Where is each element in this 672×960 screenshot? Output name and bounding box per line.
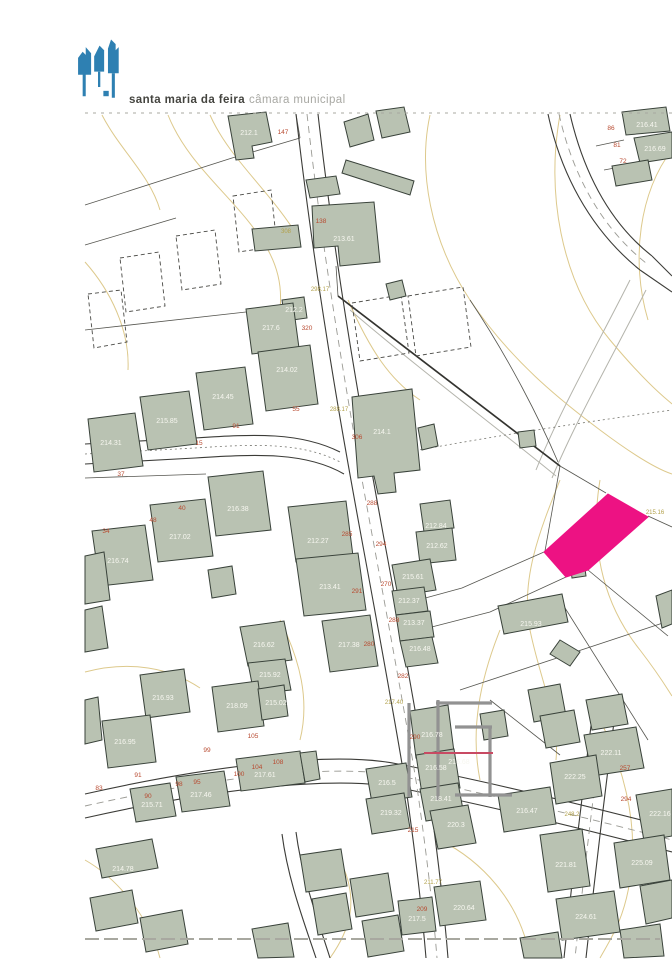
house-number-label: 291 — [352, 588, 363, 595]
castle-tower-shape — [94, 46, 104, 72]
building-footprint — [300, 849, 347, 892]
page-header: santa maria da feiracâmara municipal — [75, 28, 346, 110]
municipality-brand: santa maria da feiracâmara municipal — [129, 90, 346, 110]
elevation-label: 217.46 — [190, 792, 212, 799]
house-number-label: 105 — [248, 733, 259, 740]
highlighted-parcel — [544, 494, 648, 577]
house-number-label: 91 — [134, 772, 142, 779]
building-footprint — [140, 669, 190, 718]
building-footprint — [540, 710, 580, 748]
elevation-label: 215.85 — [156, 418, 178, 425]
elevation-label: 216.38 — [227, 506, 249, 513]
house-number-label: 100 — [234, 771, 245, 778]
elevation-label: 215.93 — [520, 621, 542, 628]
contour-line — [85, 262, 128, 370]
elevation-label: 222.16 — [649, 811, 671, 818]
elevation-label: 213.41 — [319, 584, 341, 591]
elevation-label: 217.6 — [262, 325, 280, 332]
building-footprint — [352, 389, 420, 494]
elevation-label: 216.95 — [114, 739, 136, 746]
elevation-label: 216.58 — [425, 765, 447, 772]
elevation-label: 219.32 — [380, 810, 402, 817]
contour-elevation-label: 308 — [281, 229, 292, 235]
elevation-label: 215.71 — [141, 802, 163, 809]
building-footprint — [312, 893, 352, 935]
contour-line — [102, 115, 160, 210]
building-footprint — [586, 694, 628, 730]
road-centerline — [559, 114, 646, 263]
elevation-label: 217.61 — [254, 772, 276, 779]
road-casing-line — [570, 114, 652, 256]
castle-tower-shape — [108, 39, 119, 73]
building-footprint — [252, 923, 294, 958]
building-footprint — [342, 160, 414, 195]
elevation-label: 217.02 — [169, 534, 191, 541]
parcel-boundary-line — [560, 466, 606, 493]
house-number-label: 55 — [292, 406, 300, 413]
house-number-label: 288 — [389, 617, 400, 624]
brand-subtitle: câmara municipal — [249, 94, 346, 106]
elevation-label: 212.37 — [398, 598, 420, 605]
elevation-label: 220.64 — [453, 905, 475, 912]
house-number-label: 98 — [175, 781, 183, 788]
house-number-label: 81 — [613, 142, 621, 149]
elevation-label: 216.69 — [644, 146, 666, 153]
building-footprint — [620, 924, 664, 958]
elevation-label: 222.25 — [564, 774, 586, 781]
brand-name: santa maria da feira — [129, 94, 245, 106]
elevation-label: 216.62 — [253, 642, 275, 649]
building-footprint — [480, 710, 508, 740]
house-number-label: 257 — [620, 765, 631, 772]
unbuilt-lot-outline — [408, 287, 471, 356]
building-footprint — [550, 640, 580, 666]
contour-elevation-label: 211.77 — [424, 880, 443, 886]
house-number-label: 306 — [352, 434, 363, 441]
parcel-boundary-line — [648, 516, 672, 527]
building-footprint — [140, 910, 188, 952]
building-footprint — [344, 114, 374, 147]
house-number-label: 290 — [410, 734, 421, 741]
building-footprint — [306, 176, 340, 198]
house-number-label: 37 — [117, 471, 125, 478]
building-footprint — [85, 606, 108, 652]
house-number-label: 285 — [342, 531, 353, 538]
building-footprint — [518, 430, 536, 448]
house-number-label: 294 — [376, 541, 387, 548]
castle-tower-shape — [112, 73, 115, 98]
elevation-label: 216.78 — [421, 732, 443, 739]
house-number-label: 288 — [367, 500, 378, 507]
building-footprint — [656, 590, 672, 628]
parcel-boundary-line — [336, 266, 338, 296]
elevation-label: 214.02 — [276, 367, 298, 374]
contour-elevation-label: 288.17 — [330, 407, 349, 413]
building-footprint — [90, 890, 138, 931]
elevation-label: 216.41 — [636, 122, 658, 129]
elevation-label: 216.48 — [409, 646, 431, 653]
castle-tower-shape — [103, 91, 108, 96]
building-footprint — [208, 471, 271, 536]
parcel-boundary-line — [545, 466, 560, 551]
elevation-label: 212.2 — [285, 307, 303, 314]
castle-tower-shape — [98, 72, 100, 87]
house-number-label: 86 — [607, 125, 615, 132]
elevation-label: 212.62 — [426, 543, 448, 550]
building-footprint — [612, 160, 652, 186]
road-casing-line — [640, 270, 672, 292]
house-number-label: 95 — [193, 779, 201, 786]
house-number-label: 138 — [316, 218, 327, 225]
house-number-label: 294 — [621, 796, 632, 803]
elevation-label: 213.61 — [333, 236, 355, 243]
house-number-label: 215 — [408, 827, 419, 834]
elevation-label: 216.74 — [107, 558, 129, 565]
parcel-boundary-line — [85, 474, 206, 478]
municipality-castle-logo-icon — [75, 28, 121, 110]
elevation-label: 212.84 — [425, 523, 447, 530]
elevation-label: 216.93 — [152, 695, 174, 702]
building-footprint — [312, 202, 380, 266]
contour-elevation-label: 217.40 — [385, 700, 404, 706]
house-number-label: 99 — [203, 747, 211, 754]
house-number-label: 270 — [381, 581, 392, 588]
unbuilt-lot-outline — [88, 290, 127, 348]
house-number-label: 15 — [195, 440, 203, 447]
elevation-label: 214.1 — [373, 429, 391, 436]
building-footprint — [208, 566, 236, 598]
unbuilt-lot-outline — [120, 252, 165, 312]
house-number-label: 104 — [252, 764, 263, 771]
building-footprint — [258, 345, 318, 411]
building-footprint — [418, 424, 438, 450]
house-number-label: 34 — [102, 528, 110, 535]
parcel-boundary-line — [85, 218, 176, 245]
house-number-label: 108 — [273, 759, 284, 766]
road-casing-line — [548, 114, 640, 270]
elevation-label: 224.61 — [575, 914, 597, 921]
house-number-label: 209 — [417, 906, 428, 913]
elevation-label: 216.68 — [448, 759, 470, 766]
building-footprint — [85, 697, 102, 744]
elevation-label: 225.09 — [631, 860, 653, 867]
building-footprint — [520, 932, 562, 958]
parcel-boundary-line — [470, 300, 558, 462]
contour-elevation-label: 215.16 — [646, 510, 665, 516]
elevation-label: 214.78 — [112, 866, 134, 873]
elevation-label: 218.09 — [226, 703, 248, 710]
house-number-label: 282 — [398, 673, 409, 680]
elevation-label: 217.38 — [338, 642, 360, 649]
building-footprint — [498, 594, 568, 634]
house-number-label: 90 — [144, 793, 152, 800]
elevation-label: 213.37 — [403, 620, 425, 627]
elevation-label: 216.5 — [378, 780, 396, 787]
elevation-label: 215.02 — [265, 700, 287, 707]
house-number-label: 83 — [95, 785, 103, 792]
elevation-label: 214.31 — [100, 440, 122, 447]
house-number-label: 91 — [232, 423, 240, 430]
contour-elevation-label: 248.2 — [564, 812, 580, 818]
house-number-label: 48 — [149, 517, 157, 524]
house-number-label: 147 — [278, 129, 289, 136]
building-footprint — [540, 829, 590, 892]
track-line — [552, 290, 646, 478]
building-footprint — [622, 107, 670, 135]
cadastral-map: 212.1213.61216.41216.69212.2217.6214.022… — [0, 0, 672, 960]
elevation-label: 218.41 — [430, 796, 452, 803]
building-footprint — [376, 107, 410, 138]
castle-tower-shape — [78, 47, 91, 96]
building-footprint — [350, 873, 394, 917]
elevation-label: 215.92 — [259, 672, 281, 679]
building-footprint — [640, 880, 672, 924]
elevation-label: 212.1 — [240, 130, 258, 137]
elevation-label: 214.45 — [212, 394, 234, 401]
elevation-label: 220.3 — [447, 822, 465, 829]
house-number-label: 280 — [364, 641, 375, 648]
parcel-boundary-line — [588, 570, 668, 636]
elevation-label: 216.47 — [516, 808, 538, 815]
elevation-label: 217.5 — [408, 916, 426, 923]
building-footprint — [362, 915, 404, 957]
contour-elevation-label: 298.17 — [311, 287, 330, 293]
road-casing-line — [652, 256, 672, 276]
parcel-boundary-line — [85, 312, 246, 330]
building-footprint — [386, 280, 406, 300]
building-footprint — [252, 225, 301, 251]
elevation-label: 215.61 — [402, 574, 424, 581]
unbuilt-lot-outline — [176, 230, 221, 290]
house-number-label: 72 — [619, 158, 627, 165]
house-number-label: 40 — [178, 505, 186, 512]
house-number-label: 320 — [302, 325, 313, 332]
elevation-label: 222.11 — [601, 750, 622, 757]
elevation-label: 221.81 — [555, 862, 577, 869]
building-footprint — [434, 881, 486, 926]
elevation-label: 212.27 — [307, 538, 329, 545]
